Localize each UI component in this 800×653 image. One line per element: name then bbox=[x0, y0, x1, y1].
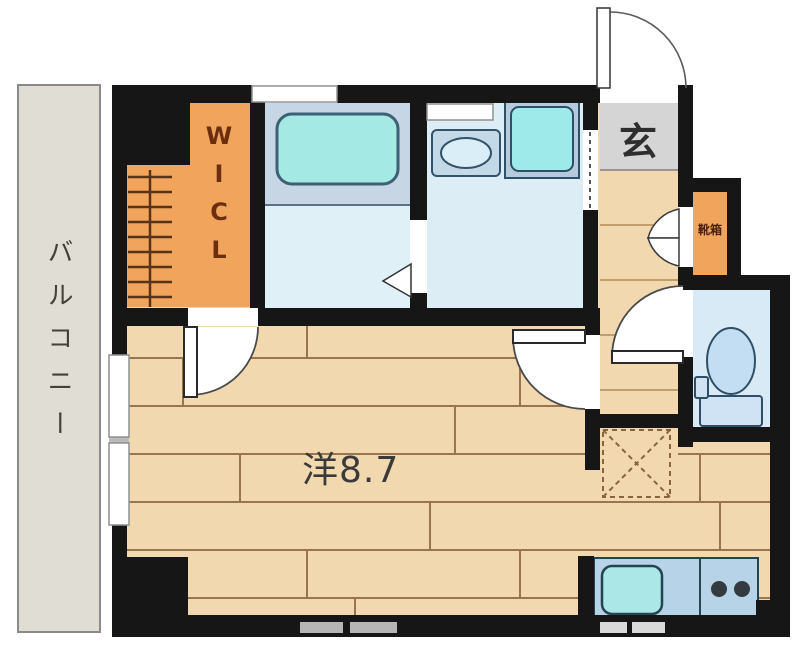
wall-segment bbox=[600, 414, 678, 428]
wall-segment bbox=[756, 600, 790, 637]
washroom bbox=[427, 101, 583, 310]
washing-machine-icon bbox=[511, 107, 573, 171]
wall-segment bbox=[127, 88, 190, 165]
wall-segment bbox=[410, 293, 427, 308]
balcony-window-icon bbox=[109, 443, 129, 525]
toilet-icon bbox=[707, 328, 755, 394]
wall-segment bbox=[112, 557, 188, 637]
mainroom-door-leaf bbox=[513, 330, 585, 343]
closet-door-leaf bbox=[184, 327, 197, 397]
wall-vent bbox=[350, 622, 397, 633]
floor-plan-drawing bbox=[0, 0, 800, 653]
wall-segment bbox=[410, 103, 427, 220]
wall-segment bbox=[727, 178, 741, 290]
kitchen-window-icon bbox=[632, 622, 665, 633]
toilet-tank bbox=[700, 396, 762, 426]
wall-segment bbox=[578, 556, 594, 622]
wall-segment bbox=[583, 210, 598, 308]
stove-burner-icon bbox=[734, 581, 750, 597]
wall-segment bbox=[583, 103, 598, 130]
floor-plan: バルコニー WICL 玄 靴箱 洋8.7 bbox=[0, 0, 800, 653]
shoebox-doorway bbox=[678, 207, 693, 267]
wall-segment bbox=[127, 308, 188, 326]
entrance-door-swing bbox=[610, 12, 686, 88]
bathroom-doorway bbox=[410, 220, 427, 293]
wall-segment bbox=[258, 308, 600, 326]
toilet-door-leaf bbox=[612, 351, 683, 363]
balcony-window-icon bbox=[109, 355, 129, 437]
main-room-label: 洋8.7 bbox=[302, 441, 399, 493]
kitchen bbox=[594, 558, 758, 622]
wall-vent bbox=[300, 622, 343, 633]
mainroom-doorway bbox=[585, 335, 600, 409]
entrance-label: 玄 bbox=[619, 111, 657, 166]
window-mullion bbox=[109, 437, 129, 443]
wall-segment bbox=[188, 615, 772, 637]
washbasin-bowl bbox=[441, 138, 491, 168]
wall-segment bbox=[585, 308, 600, 335]
wall-segment bbox=[112, 103, 127, 357]
wall-segment bbox=[585, 409, 600, 470]
balcony-label: バルコニー bbox=[40, 238, 77, 453]
wall-segment bbox=[770, 275, 790, 620]
wall-segment bbox=[337, 85, 600, 103]
entrance-door-leaf bbox=[597, 8, 610, 88]
wall-segment bbox=[250, 88, 265, 308]
walk-in-closet-label: WICL bbox=[205, 122, 233, 274]
kitchen-window-icon bbox=[600, 622, 627, 633]
toilet-flush-handle bbox=[695, 377, 708, 398]
shoe-box-label: 靴箱 bbox=[693, 221, 727, 238]
window-icon bbox=[427, 104, 493, 120]
closet-doorway bbox=[188, 308, 258, 326]
toilet-room bbox=[693, 290, 770, 427]
kitchen-sink-icon bbox=[602, 566, 662, 614]
window-icon bbox=[252, 86, 337, 102]
stove-burner-icon bbox=[711, 581, 727, 597]
bathtub-icon bbox=[277, 114, 398, 184]
